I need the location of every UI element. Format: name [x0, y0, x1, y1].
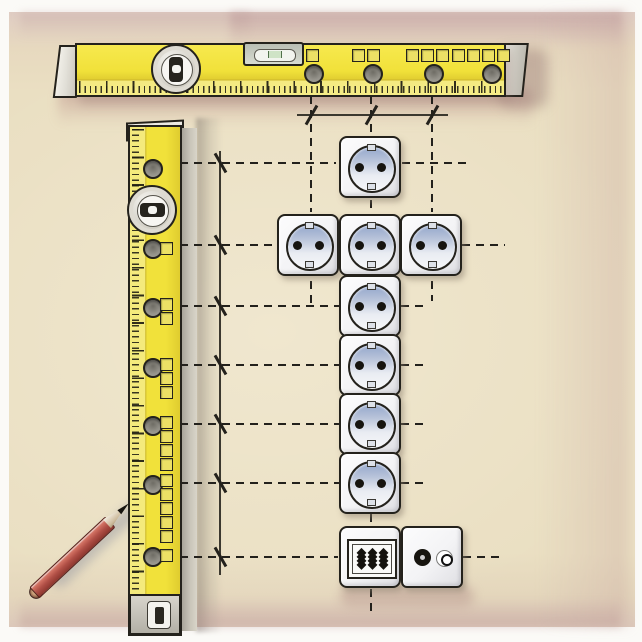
socket-ground-notch	[367, 342, 376, 349]
socket-ground-notch	[367, 283, 376, 290]
level-square-hole	[160, 242, 173, 255]
socket-pin-hole	[355, 479, 364, 488]
guide-dashed-line	[180, 556, 338, 559]
wall-socket	[339, 214, 401, 276]
tube-vial-bubble	[268, 51, 282, 58]
level-square-hole	[160, 530, 173, 543]
socket-pin-hole	[355, 302, 364, 311]
bottom-vial-slot	[155, 607, 164, 624]
socket-ground-notch	[367, 222, 376, 229]
terminal-column	[368, 551, 376, 566]
wall-socket	[339, 452, 401, 514]
guide-dashed-line	[310, 281, 313, 303]
terminal-frame-inner	[352, 544, 392, 574]
socket-pin-hole	[377, 163, 386, 172]
terminal-frame	[347, 539, 397, 579]
level-square-hole	[160, 458, 173, 471]
terminal-column	[357, 551, 365, 566]
terminal-socket	[339, 526, 401, 588]
socket-ground-notch	[305, 222, 314, 229]
socket-ground-notch	[367, 144, 376, 151]
level-square-hole	[160, 298, 173, 311]
level-hole	[143, 159, 163, 179]
socket-ground-notch	[367, 460, 376, 467]
level-square-hole	[306, 49, 319, 62]
level-hole	[363, 64, 383, 84]
guide-dashed-line	[180, 305, 339, 308]
guide-dashed-line	[463, 556, 505, 559]
socket-ground-notch	[367, 381, 376, 388]
socket-ground-notch	[367, 499, 376, 506]
socket-pin-hole	[315, 241, 324, 250]
guide-dashed-line	[370, 200, 373, 213]
level-square-hole	[352, 49, 365, 62]
tv-connector-dot	[420, 555, 425, 560]
bottom-vial-window	[147, 601, 171, 629]
level-square-hole	[160, 416, 173, 429]
level-square-hole	[160, 549, 173, 562]
level-square-hole	[367, 49, 380, 62]
level-square-hole	[436, 49, 449, 62]
socket-pin-hole	[355, 163, 364, 172]
guide-dashed-line	[180, 364, 339, 367]
level-hole	[304, 64, 324, 84]
level-square-hole	[497, 49, 510, 62]
guide-dashed-line	[401, 423, 429, 426]
guide-dashed-line	[401, 364, 429, 367]
level-square-hole	[160, 430, 173, 443]
ruler-minor-ticks	[79, 86, 502, 93]
level-square-hole	[160, 516, 173, 529]
socket-ground-notch	[367, 183, 376, 190]
guide-dashed-line	[180, 423, 339, 426]
socket-pin-hole	[355, 420, 364, 429]
wall-socket	[277, 214, 339, 276]
level-square-hole	[421, 49, 434, 62]
wall-socket	[400, 214, 462, 276]
level-square-hole	[160, 502, 173, 515]
guide-dashed-line	[402, 162, 470, 165]
socket-ground-notch	[305, 261, 314, 268]
level-square-hole	[482, 49, 495, 62]
terminal-column	[379, 551, 387, 566]
guide-dashed-line	[180, 244, 278, 247]
socket-pin-hole	[416, 241, 425, 250]
guide-dashed-line	[370, 589, 373, 612]
level-round-vial	[151, 44, 201, 94]
level-square-hole	[160, 488, 173, 501]
wall-socket	[339, 393, 401, 455]
guide-dashed-line	[462, 244, 505, 247]
level-square-hole	[160, 312, 173, 325]
socket-ground-notch	[367, 322, 376, 329]
tv-connector	[414, 549, 431, 566]
socket-pin-hole	[438, 241, 447, 250]
tv-radio-socket	[401, 526, 463, 588]
radio-connector-ring	[441, 554, 453, 566]
socket-pin-hole	[377, 361, 386, 370]
level-square-hole	[467, 49, 480, 62]
level-square-hole	[160, 358, 173, 371]
socket-pin-hole	[377, 420, 386, 429]
socket-pin-hole	[355, 241, 364, 250]
socket-ground-notch	[367, 261, 376, 268]
socket-ground-notch	[367, 440, 376, 447]
wall-socket	[339, 136, 401, 198]
guide-dashed-line	[180, 482, 339, 485]
vertical-level-round-vial	[127, 185, 177, 235]
vertical-level-bottom-cap	[129, 594, 181, 635]
socket-pin-hole	[377, 302, 386, 311]
guide-dashed-line	[431, 281, 434, 301]
level-tube-vial	[243, 42, 304, 66]
level-square-hole	[160, 474, 173, 487]
socket-pin-hole	[377, 479, 386, 488]
level-square-hole	[160, 444, 173, 457]
level-square-hole	[160, 372, 173, 385]
socket-ground-notch	[367, 401, 376, 408]
level-hole	[482, 64, 502, 84]
guide-dashed-line	[401, 305, 429, 308]
socket-pin-hole	[355, 361, 364, 370]
illustration	[0, 0, 642, 642]
level-square-hole	[452, 49, 465, 62]
level-square-hole	[160, 386, 173, 399]
vial-bubble	[148, 206, 157, 214]
level-square-hole	[406, 49, 419, 62]
socket-pin-hole	[293, 241, 302, 250]
wall-socket	[339, 334, 401, 396]
socket-pin-hole	[377, 241, 386, 250]
wall-socket	[339, 275, 401, 337]
guide-dashed-line	[401, 482, 429, 485]
level-hole	[424, 64, 444, 84]
socket-plate	[401, 526, 463, 588]
radio-connector	[436, 550, 453, 567]
vial-bubble	[172, 65, 181, 73]
socket-ground-notch	[428, 261, 437, 268]
socket-ground-notch	[428, 222, 437, 229]
guide-dashed-line	[180, 162, 336, 165]
